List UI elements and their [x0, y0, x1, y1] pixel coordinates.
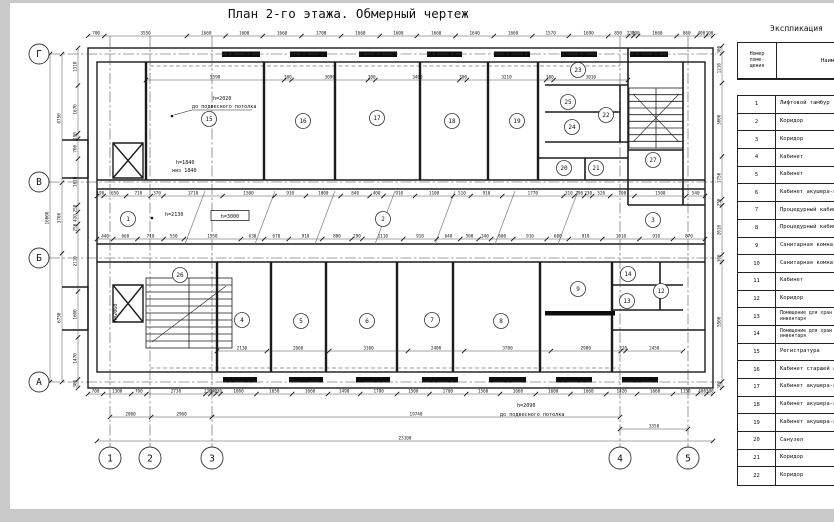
room-number-label: 24 [568, 124, 576, 131]
room-number-cell: 8 [738, 220, 776, 237]
dimension-label: 710 [134, 191, 142, 197]
room-name-cell: Процедурный кабине [776, 202, 834, 219]
room-number-cell: 5 [738, 167, 776, 184]
room-number-cell: 17 [738, 379, 776, 396]
room-number-label: 5 [299, 318, 303, 325]
dimension-label: 510 [458, 191, 466, 197]
height-note: h=2020 [213, 96, 231, 102]
room-number-label: 23 [574, 67, 582, 74]
dimension-label: 700 [92, 389, 100, 395]
dimension-label: 1500 [655, 191, 666, 197]
room-number-label: 17 [373, 115, 381, 122]
room-name-cell: Коридор [776, 450, 834, 467]
dimension-label: 540 [692, 191, 700, 197]
height-note: низ 1840 [172, 168, 197, 174]
room-number-cell: 2 [738, 114, 776, 131]
dimension-label: 1700 [443, 389, 454, 395]
dimension-label: 1000 [318, 191, 329, 197]
dimension-label: 1100 [429, 191, 440, 197]
dimension-label: 2130 [237, 346, 248, 352]
dimension-label: 23100 [399, 436, 412, 442]
dimension-label: 910 [652, 234, 660, 240]
dimension-label: 3210 [501, 75, 512, 81]
dimension-label: 910 [416, 234, 424, 240]
dimension-label: 1110 [378, 234, 389, 240]
dimension-label: 1660 [513, 389, 524, 395]
explication-header: Номер поме- щения Наименование [737, 42, 834, 80]
dimension-label: 420 [73, 214, 79, 222]
dimension-label: 600 [498, 234, 506, 240]
room-name-cell: Санитарная комнат [776, 255, 834, 272]
room-name-cell: Коридор [776, 114, 834, 131]
table-row: 10Санитарная комнат [738, 255, 834, 273]
dimension-label: 3350 [649, 424, 660, 430]
room-number-cell: 16 [738, 361, 776, 378]
room-number-label: 9 [576, 286, 580, 293]
table-row: 2Коридор [738, 114, 834, 132]
table-row: 19Кабинет акушера-ги [738, 414, 834, 432]
dimension-label: 1500 [243, 191, 254, 197]
dimension-label: 1690 [583, 31, 594, 37]
dimension-label: 440 [101, 234, 109, 240]
dimension-label: 300 [546, 75, 554, 81]
dimension-label: 1660 [201, 31, 212, 37]
dimension-label: 290 [353, 234, 361, 240]
dimension-label: 300 [73, 379, 79, 387]
table-row: 11Кабинет [738, 273, 834, 291]
room-number-label: 7 [430, 317, 434, 324]
height-note: до подвесного потолка [500, 412, 564, 418]
dimension-label: 1640 [469, 31, 480, 37]
room-number-cell: 20 [738, 432, 776, 449]
screenshot-root: { "title": "План 2-го этажа. Обмерный че… [0, 0, 834, 522]
table-row: 18Кабинет акушера-ги [738, 397, 834, 415]
table-row: 14Помещение для хран инвентаря [738, 326, 834, 344]
dimension-label: 1660 [233, 389, 244, 395]
dimension-label: 1600 [548, 389, 559, 395]
dimension-label: 250 [73, 223, 79, 231]
dimension-label: 1610 [73, 176, 79, 187]
room-number-cell: 9 [738, 238, 776, 255]
axis-label: 3 [209, 454, 215, 465]
dimension-label: 300 [717, 45, 723, 53]
room-name-cell: Помещение для хран инвентаря [776, 308, 834, 325]
dimension-label: 1660 [277, 31, 288, 37]
dimension-label: 650 [111, 191, 119, 197]
dimension-label: 2660 [293, 346, 304, 352]
dimension-label: 910 [483, 191, 491, 197]
room-number-label: 6 [365, 318, 369, 325]
dimension-label: 1490 [339, 389, 350, 395]
dimension-label: 1300 [112, 389, 123, 395]
dimension-label: 2000 [125, 412, 136, 418]
room-number-label: 2 [381, 216, 385, 223]
dimension-label: 1470 [73, 353, 79, 364]
dimension-label: 1660 [650, 389, 661, 395]
room-number-label: 27 [649, 157, 657, 164]
room-number-cell: 3 [738, 131, 776, 148]
table-row: 16Кабинет старшей ак [738, 361, 834, 379]
dimension-label: 710 [147, 234, 155, 240]
room-name-cell: Коридор [776, 291, 834, 308]
dimension-label: 870 [685, 234, 693, 240]
height-note: h=2090 [517, 403, 535, 409]
dimension-label: 2980 [581, 346, 592, 352]
dimension-label: 1310 [73, 61, 79, 72]
dimension-label: 1550 [207, 234, 218, 240]
room-name-cell: Кабинет акушера-ги [776, 397, 834, 414]
dimension-label: 6750 [57, 113, 63, 124]
room-name-cell: Процедурный кабине [776, 220, 834, 237]
room-number-label: 22 [602, 112, 610, 119]
room-number-label: 12 [657, 288, 665, 295]
header-room-name: Наименование [777, 43, 834, 78]
dimension-label: 1660 [305, 389, 316, 395]
dimension-label: 700 [92, 31, 100, 37]
table-row: 13Помещение для хран инвентаря [738, 308, 834, 326]
floor-plan-drawing: 7003550166016001660170016601600166016401… [0, 0, 834, 522]
dimension-label: 6750 [57, 312, 63, 323]
room-number-label: 20 [560, 165, 568, 172]
room-number-label: 1 [126, 216, 130, 223]
dimension-label: 630 [249, 234, 257, 240]
room-number-cell: 1 [738, 96, 776, 113]
table-row: 3Коридор [738, 131, 834, 149]
drawing-title: План 2-го этажа. Обмерный чертеж [228, 6, 469, 21]
room-name-cell: Коридор [776, 131, 834, 148]
dimension-label: 3000 [717, 114, 723, 125]
dimension-label: 3700 [502, 346, 513, 352]
dimension-label: 670 [273, 234, 281, 240]
dimension-label: 910 [526, 234, 534, 240]
table-row: 12Коридор [738, 291, 834, 309]
dimension-label: 2960 [176, 412, 187, 418]
dimension-label: 1010 [616, 234, 627, 240]
dimension-label: 400 [697, 31, 705, 37]
table-row: 17Кабинет акушера-ги [738, 379, 834, 397]
room-number-cell: 21 [738, 450, 776, 467]
dimension-label: 340 [481, 234, 489, 240]
axis-label: 1 [107, 454, 113, 465]
table-row: 22Коридор [738, 467, 834, 485]
dimension-label: 1660 [355, 31, 366, 37]
room-number-cell: 18 [738, 397, 776, 414]
dimension-label: 1700 [373, 389, 384, 395]
dimension-label: 300 [717, 254, 723, 262]
axis-label: 4 [617, 454, 623, 465]
dimension-label: 250 [717, 198, 723, 206]
dimension-label: 640 [445, 234, 453, 240]
dimension-label: 840 [351, 191, 359, 197]
room-name-cell: Кабинет [776, 273, 834, 290]
room-number-cell: 13 [738, 308, 776, 325]
dimension-label: 2110 [73, 256, 79, 267]
room-number-cell: 19 [738, 414, 776, 431]
room-name-cell: Помещение для хран инвентаря [776, 326, 834, 343]
dimension-label: 860 [683, 31, 691, 37]
room-number-label: 25 [564, 99, 572, 106]
dimension-label: 660 [121, 234, 129, 240]
dimension-label: 370 [153, 191, 161, 197]
table-row: 8Процедурный кабине [738, 220, 834, 238]
dimension-label: 1210 [717, 63, 723, 74]
dimension-label: 1570 [545, 31, 556, 37]
dimension-label: 1600 [73, 309, 79, 320]
dimension-label: 19740 [410, 412, 423, 418]
dimension-label: 1500 [408, 389, 419, 395]
dimension-label: 2400 [431, 346, 442, 352]
dimension-label: 520 [597, 191, 605, 197]
dimension-label: 1750 [717, 172, 723, 183]
room-name-cell: Кабинет акушера-ги [776, 379, 834, 396]
dimension-label: 310 [565, 191, 573, 197]
room-number-label: 3 [651, 217, 655, 224]
dimension-label: 5500 [717, 316, 723, 327]
table-row: 9Санитарная комнат [738, 238, 834, 256]
room-number-label: 19 [513, 118, 521, 125]
dimension-label: 1650 [269, 389, 280, 395]
dimension-label: 1700 [316, 31, 327, 37]
dimension-label: 300 [717, 380, 723, 388]
dimension-label: 1600 [239, 31, 250, 37]
dimension-label: 290 [575, 191, 583, 197]
dimension-label: 2450 [649, 346, 660, 352]
dimension-label: 1660 [583, 389, 594, 395]
dimension-label: 1770 [528, 191, 539, 197]
room-number-label: 4 [240, 317, 244, 324]
height-note: h=2060 [113, 304, 119, 322]
dimension-label: 2010 [717, 224, 723, 235]
table-row: 5Кабинет [738, 167, 834, 185]
table-row: 4Кабинет [738, 149, 834, 167]
dimension-label: 3700 [57, 212, 63, 223]
dimension-label: 400 [373, 191, 381, 197]
dimension-label: 500 [466, 234, 474, 240]
room-number-cell: 11 [738, 273, 776, 290]
room-name-cell: Кабинет [776, 167, 834, 184]
table-row: 1Лифтовой тамбур [738, 96, 834, 114]
dimension-label: 1660 [508, 31, 519, 37]
dimension-label: 600 [554, 234, 562, 240]
room-number-label: 8 [499, 318, 503, 325]
room-number-cell: 7 [738, 202, 776, 219]
room-name-cell: Лифтовой тамбур [776, 96, 834, 113]
table-body: 1Лифтовой тамбур2Коридор3Коридор4Кабинет… [737, 95, 834, 486]
dimension-label: 5590 [210, 75, 221, 81]
height-note: h=3000 [221, 214, 239, 220]
dimension-label: 3400 [412, 75, 423, 81]
room-number-label: 13 [623, 298, 631, 305]
dimension-label: 300 [459, 75, 467, 81]
room-number-cell: 12 [738, 291, 776, 308]
room-number-cell: 22 [738, 467, 776, 485]
dimension-label: 250 [73, 204, 79, 212]
dimension-label: 1660 [431, 31, 442, 37]
dimension-label: 910 [286, 191, 294, 197]
dimension-label: 300 [368, 75, 376, 81]
room-name-cell: Кабинет акушера-ги [776, 414, 834, 431]
dimension-label: 910 [302, 234, 310, 240]
room-name-cell: Кабинет [776, 149, 834, 166]
dimension-label: 700 [73, 144, 79, 152]
thick-wall-segment [545, 311, 615, 316]
room-number-cell: 10 [738, 255, 776, 272]
dimension-label: 1670 [73, 104, 79, 115]
dimension-label: 550 [170, 234, 178, 240]
height-note: h=2130 [165, 212, 183, 218]
room-number-cell: 6 [738, 184, 776, 201]
axis-label: Б [36, 253, 42, 264]
room-number-label: 16 [299, 118, 307, 125]
axis-label: А [36, 377, 42, 388]
dimension-label: 850 [614, 31, 622, 37]
room-number-label: 21 [592, 165, 600, 172]
dimension-label: 910 [395, 191, 403, 197]
dimension-label: 700 [618, 191, 626, 197]
room-number-label: 14 [624, 271, 632, 278]
room-name-cell: Коридор [776, 467, 834, 485]
room-name-cell: Санузел [776, 432, 834, 449]
dimension-label: 3360 [363, 346, 374, 352]
axis-label: В [36, 177, 42, 188]
header-room-number: Номер поме- щения [738, 43, 777, 78]
room-number-label: 18 [448, 118, 456, 125]
axis-label: 2 [147, 454, 153, 465]
dimension-label: 1420 [617, 389, 628, 395]
room-name-cell: Санитарная комнат [776, 238, 834, 255]
axis-label: Г [36, 49, 42, 60]
dimension-label: 3550 [140, 31, 151, 37]
dimension-label: 700 [135, 389, 143, 395]
dimension-label: 800 [333, 234, 341, 240]
height-note: h=1840 [176, 160, 194, 166]
axis-label: 5 [685, 454, 691, 465]
room-number-cell: 4 [738, 149, 776, 166]
room-number-label: 26 [176, 272, 184, 279]
dimension-label: 1150 [680, 389, 691, 395]
table-row: 15Регистратура [738, 344, 834, 362]
room-name-cell: Кабинет акушера-ги [776, 184, 834, 201]
dimension-label: 2730 [171, 389, 182, 395]
dimension-label: 3010 [586, 75, 597, 81]
dimension-label: 300 [706, 31, 714, 37]
table-row: 20Санузел [738, 432, 834, 450]
dimension-label: 300 [284, 75, 292, 81]
room-name-cell: Кабинет старшей ак [776, 361, 834, 378]
height-note: до подвесного потолка [192, 104, 256, 110]
dimension-label: 3090 [325, 75, 336, 81]
room-number-label: 15 [205, 116, 213, 123]
dimension-label: 16000 [45, 211, 51, 224]
dimension-label: 230 [584, 191, 592, 197]
room-number-cell: 15 [738, 344, 776, 361]
table-row: 7Процедурный кабине [738, 202, 834, 220]
table-row: 6Кабинет акушера-ги [738, 184, 834, 202]
table-row: 21Коридор [738, 450, 834, 468]
room-name-cell: Регистратура [776, 344, 834, 361]
dimension-label: 1660 [652, 31, 663, 37]
dimension-label: 1600 [393, 31, 404, 37]
dimension-label: 910 [582, 234, 590, 240]
room-number-cell: 14 [738, 326, 776, 343]
explication-title: Экспликация [770, 24, 823, 33]
dimension-label: 1560 [478, 389, 489, 395]
dimension-label: 1710 [188, 191, 199, 197]
